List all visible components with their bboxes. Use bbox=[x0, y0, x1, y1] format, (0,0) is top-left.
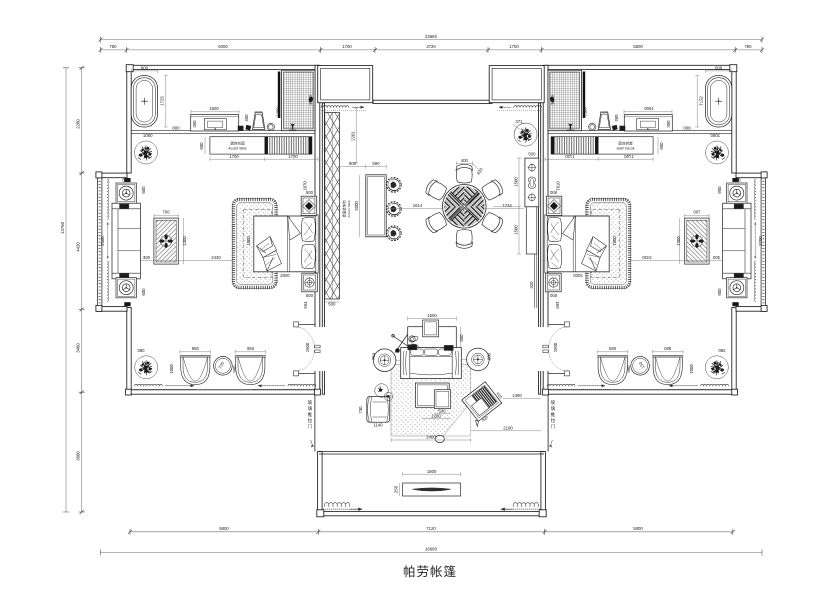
svg-text:590: 590 bbox=[372, 161, 380, 166]
svg-text:门: 门 bbox=[308, 423, 312, 430]
svg-text:754: 754 bbox=[371, 352, 376, 360]
svg-text:1390: 1390 bbox=[512, 393, 522, 398]
svg-text:2000: 2000 bbox=[280, 273, 290, 278]
svg-text:2400: 2400 bbox=[426, 435, 436, 440]
svg-text:1260: 1260 bbox=[431, 413, 441, 418]
svg-text:400: 400 bbox=[461, 158, 469, 163]
svg-text:730: 730 bbox=[358, 406, 363, 414]
svg-text:500: 500 bbox=[328, 302, 336, 307]
svg-text:320: 320 bbox=[529, 281, 534, 289]
svg-text:3460: 3460 bbox=[76, 343, 81, 353]
svg-text:500: 500 bbox=[306, 190, 314, 195]
svg-text:Accent Table: Accent Table bbox=[228, 147, 246, 151]
svg-text:3600: 3600 bbox=[76, 451, 81, 461]
svg-text:1800: 1800 bbox=[246, 236, 251, 246]
svg-text:2800: 2800 bbox=[308, 95, 313, 105]
svg-text:帕劳帐篷: 帕劳帐篷 bbox=[403, 564, 457, 579]
svg-text:玻: 玻 bbox=[551, 399, 556, 406]
svg-text:璃: 璃 bbox=[308, 405, 313, 412]
svg-text:500: 500 bbox=[459, 334, 464, 342]
svg-text:3720: 3720 bbox=[426, 44, 436, 49]
svg-text:2190: 2190 bbox=[503, 425, 513, 430]
svg-text:800: 800 bbox=[172, 126, 180, 131]
svg-text:1080: 1080 bbox=[143, 133, 153, 138]
svg-text:装饰台面: 装饰台面 bbox=[230, 140, 245, 145]
svg-text:门: 门 bbox=[551, 423, 555, 430]
svg-text:371: 371 bbox=[515, 119, 523, 124]
svg-text:1000: 1000 bbox=[169, 364, 174, 374]
svg-text:1700: 1700 bbox=[288, 154, 298, 159]
svg-text:600: 600 bbox=[141, 186, 146, 194]
svg-text:Accent Table: Accent Table bbox=[347, 200, 351, 217]
svg-text:拉: 拉 bbox=[551, 417, 556, 424]
svg-text:1700: 1700 bbox=[509, 44, 519, 49]
svg-text:2430: 2430 bbox=[211, 255, 221, 260]
svg-text:6000: 6000 bbox=[218, 44, 228, 49]
svg-text:780: 780 bbox=[744, 44, 752, 49]
svg-text:780: 780 bbox=[109, 44, 117, 49]
svg-text:600: 600 bbox=[199, 142, 204, 150]
svg-text:5800: 5800 bbox=[219, 526, 229, 531]
svg-text:1300: 1300 bbox=[182, 236, 187, 246]
svg-text:推: 推 bbox=[551, 411, 556, 418]
svg-text:500: 500 bbox=[306, 293, 314, 298]
svg-text:16680: 16680 bbox=[425, 547, 438, 552]
svg-text:玻: 玻 bbox=[308, 399, 313, 406]
svg-text:5800: 5800 bbox=[633, 526, 643, 531]
svg-text:600: 600 bbox=[122, 178, 130, 183]
svg-text:600: 600 bbox=[141, 288, 146, 296]
svg-text:1725: 1725 bbox=[160, 96, 165, 106]
svg-text:700: 700 bbox=[162, 210, 170, 215]
svg-text:1700: 1700 bbox=[342, 44, 352, 49]
svg-text:1140: 1140 bbox=[373, 423, 383, 428]
svg-text:2280: 2280 bbox=[76, 119, 81, 129]
svg-text:1800: 1800 bbox=[427, 469, 437, 474]
svg-text:800: 800 bbox=[141, 66, 149, 71]
svg-text:594: 594 bbox=[303, 301, 308, 309]
svg-text:950: 950 bbox=[247, 346, 255, 351]
svg-text:13760: 13760 bbox=[60, 221, 65, 234]
svg-text:推: 推 bbox=[308, 411, 313, 418]
svg-text:5800: 5800 bbox=[633, 44, 643, 49]
svg-text:拉: 拉 bbox=[308, 417, 313, 424]
svg-text:380: 380 bbox=[137, 348, 145, 353]
svg-text:250: 250 bbox=[393, 485, 398, 493]
svg-text:1614: 1614 bbox=[413, 203, 423, 208]
svg-text:2100: 2100 bbox=[100, 236, 105, 246]
svg-text:璃: 璃 bbox=[551, 405, 556, 412]
svg-text:墙面装饰物: 墙面装饰物 bbox=[342, 200, 347, 218]
svg-text:1500: 1500 bbox=[209, 106, 219, 111]
svg-text:2000: 2000 bbox=[354, 201, 359, 211]
svg-text:1500: 1500 bbox=[305, 342, 310, 352]
svg-text:980: 980 bbox=[232, 365, 237, 373]
svg-text:950: 950 bbox=[192, 346, 200, 351]
svg-text:450: 450 bbox=[244, 114, 249, 122]
svg-text:2201: 2201 bbox=[351, 131, 356, 141]
svg-text:500: 500 bbox=[528, 152, 536, 157]
svg-text:900: 900 bbox=[349, 161, 357, 166]
svg-text:1500: 1500 bbox=[427, 313, 437, 318]
svg-text:4420: 4420 bbox=[76, 242, 81, 252]
svg-text:1200: 1200 bbox=[276, 107, 281, 117]
svg-text:1234: 1234 bbox=[502, 203, 512, 208]
svg-text:1700: 1700 bbox=[229, 154, 239, 159]
svg-text:1500: 1500 bbox=[513, 177, 518, 187]
svg-text:7120: 7120 bbox=[426, 526, 436, 531]
svg-text:23680: 23680 bbox=[425, 34, 438, 39]
svg-text:600: 600 bbox=[487, 352, 492, 360]
svg-text:1500: 1500 bbox=[513, 225, 518, 235]
svg-text:300: 300 bbox=[143, 255, 151, 260]
svg-text:350: 350 bbox=[192, 120, 197, 128]
